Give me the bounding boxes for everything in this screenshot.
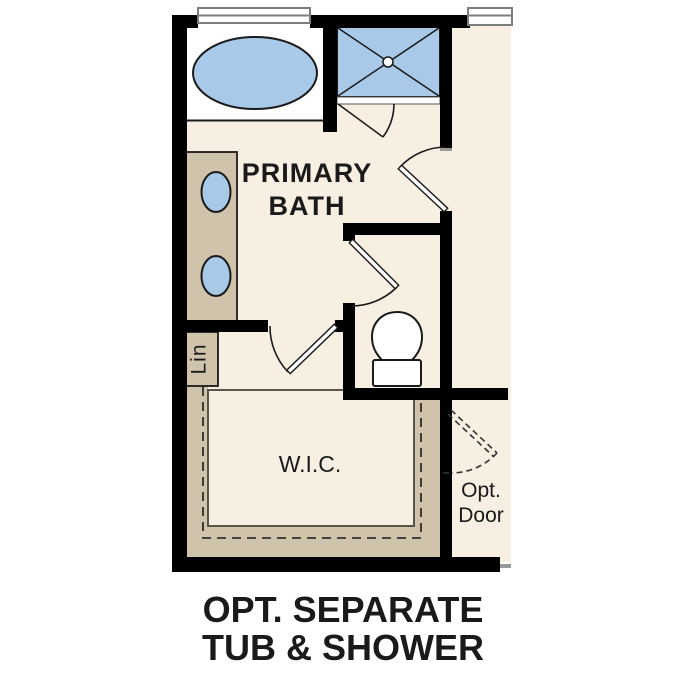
bathtub-basin (193, 37, 317, 109)
wall-segment (440, 15, 452, 148)
wall-segment (172, 320, 268, 332)
vanity (185, 152, 237, 321)
wall-segment (323, 15, 337, 132)
toilet-tank (373, 360, 421, 386)
shower-drain (383, 57, 393, 67)
toilet-fixture (372, 312, 422, 386)
wall-segment (343, 303, 355, 400)
wall-segment (172, 15, 187, 572)
wall-segment (172, 557, 500, 572)
bathtub-fixture (187, 22, 323, 121)
caption-line2: TUB & SHOWER (202, 627, 484, 668)
wic-shelf-bottom (187, 526, 440, 557)
primary-bath-label-line2: BATH (269, 191, 346, 221)
wic-label: W.I.C. (279, 451, 342, 477)
sink-basin (202, 172, 231, 212)
opt-door-label-line2: Door (458, 504, 504, 527)
opt-door-label-line1: Opt. (461, 479, 501, 502)
toilet-bowl (372, 312, 422, 360)
shower-threshold (337, 97, 440, 104)
floor-plan: Lin (0, 0, 687, 687)
wall-segment (440, 211, 452, 557)
wall-end-tick (440, 148, 452, 151)
linen-label: Lin (188, 343, 211, 374)
wall-end-tick (500, 564, 511, 568)
wall-segment (343, 388, 508, 400)
primary-bath-label-line1: PRIMARY (242, 158, 373, 188)
sink-basin (202, 256, 231, 296)
caption-line1: OPT. SEPARATE (203, 589, 484, 630)
wall-segment (343, 223, 452, 235)
floor-plan-page: Lin (0, 0, 687, 687)
wall-segment (343, 223, 355, 241)
wall-segment (335, 320, 355, 332)
